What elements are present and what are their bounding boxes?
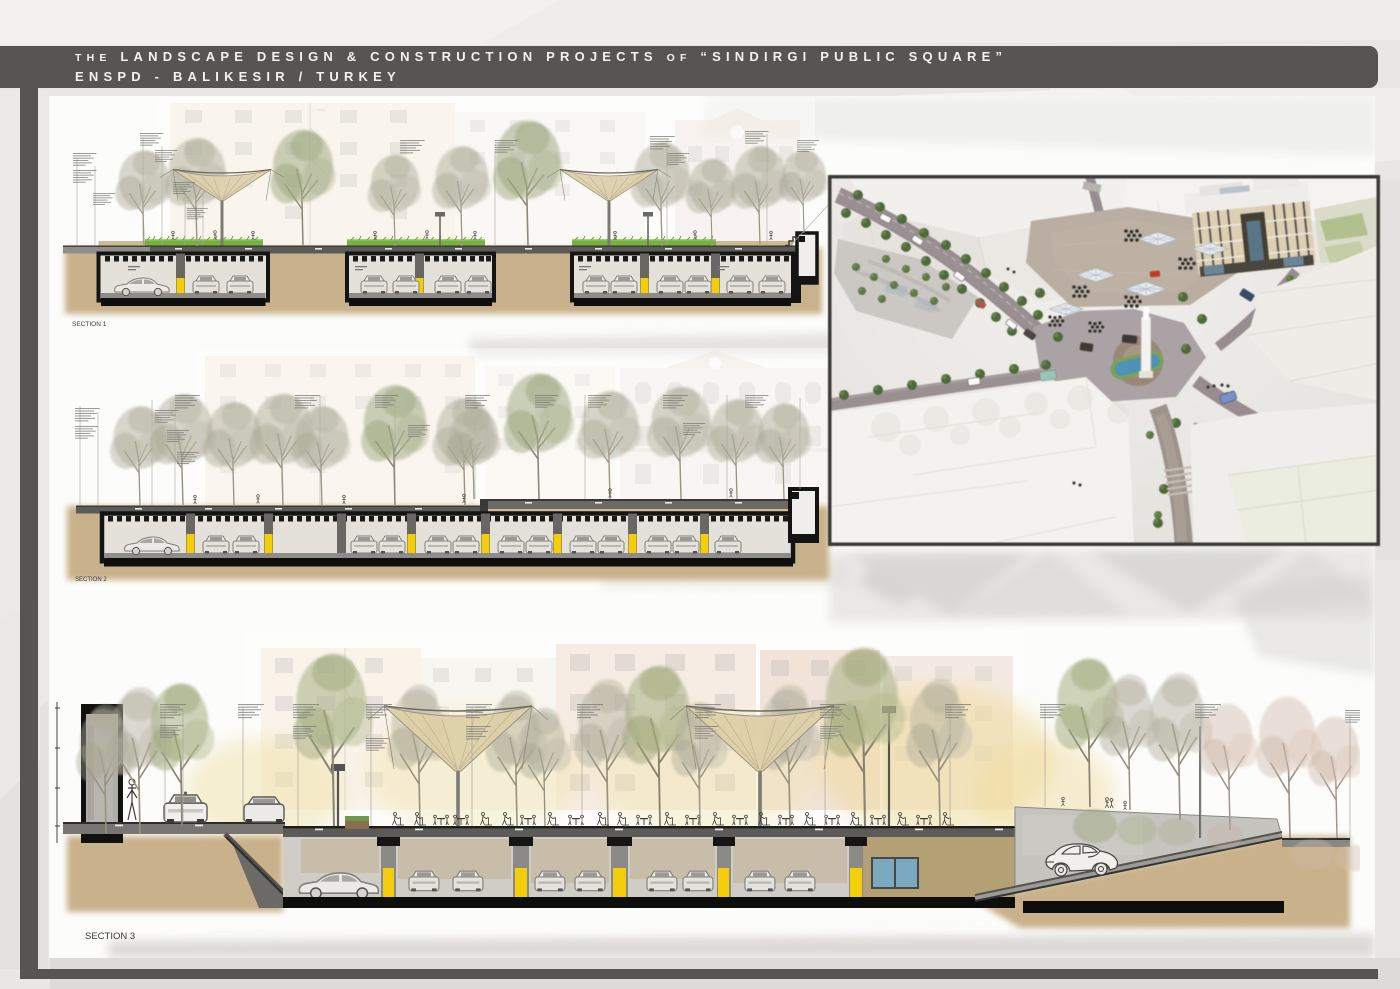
- svg-text:SECTION 2: SECTION 2: [75, 577, 107, 583]
- svg-text:SECTION 3: SECTION 3: [85, 931, 135, 942]
- svg-text:SECTION 1: SECTION 1: [72, 321, 107, 328]
